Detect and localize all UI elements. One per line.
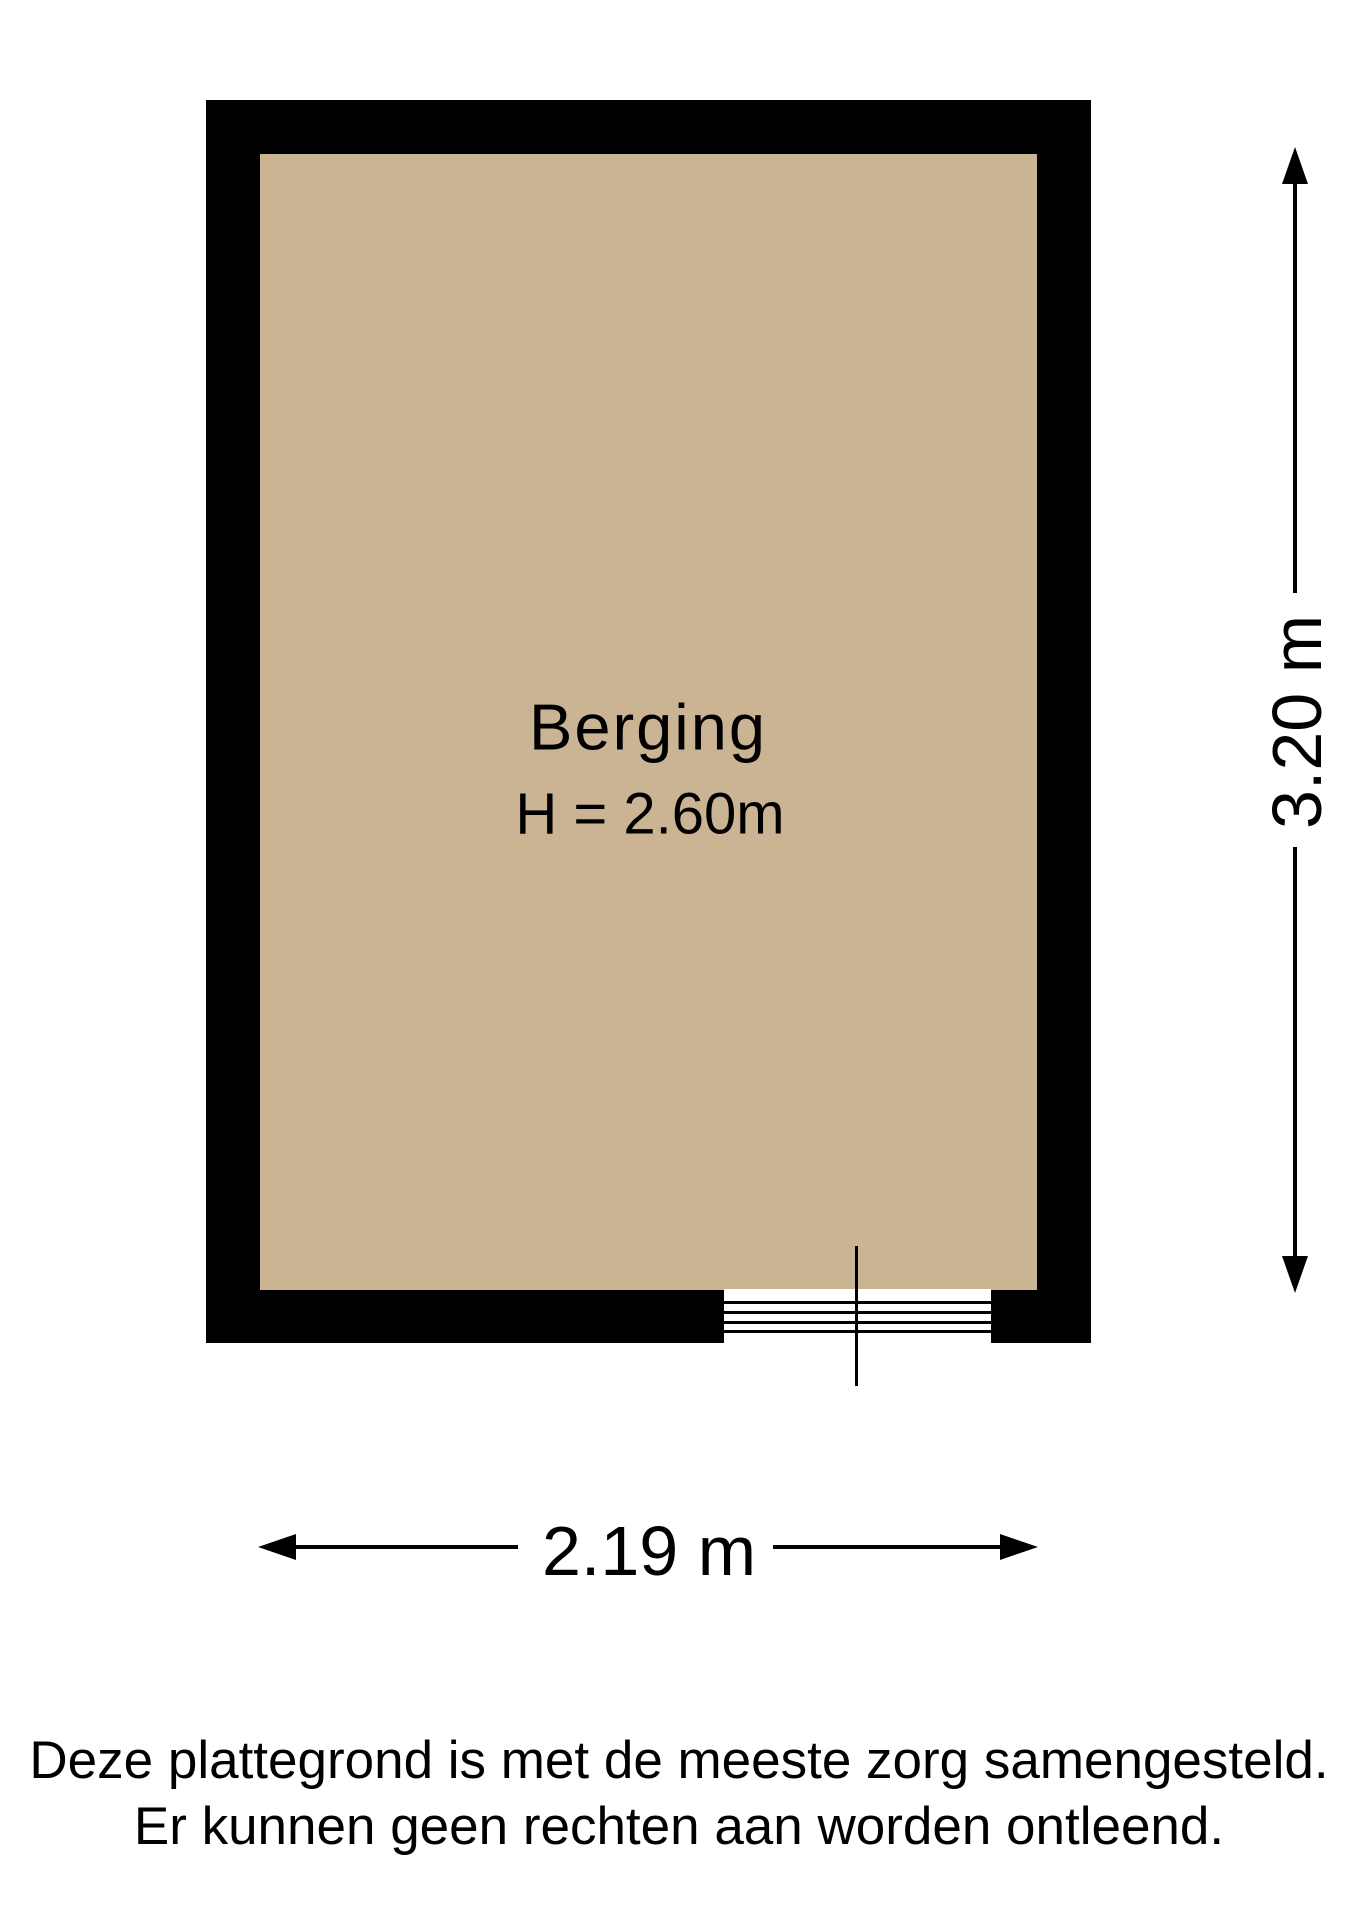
height-dimension-label: 3.20 m bbox=[1257, 615, 1337, 829]
width-dimension-label: 2.19 m bbox=[542, 1511, 756, 1591]
height-dimension-line bbox=[1293, 180, 1297, 593]
arrowhead-left-icon bbox=[258, 1534, 296, 1560]
room-name-label: Berging bbox=[529, 690, 767, 765]
height-dimension-line bbox=[1293, 847, 1297, 1259]
room-ceiling-height-label: H = 2.60m bbox=[515, 781, 784, 848]
disclaimer-line-2: Er kunnen geen rechten aan worden ontlee… bbox=[0, 1794, 1358, 1860]
disclaimer-line-1: Deze plattegrond is met de meeste zorg s… bbox=[0, 1728, 1358, 1794]
width-dimension-line bbox=[773, 1545, 1000, 1549]
arrowhead-right-icon bbox=[1000, 1534, 1038, 1560]
arrowhead-up-icon bbox=[1282, 147, 1308, 184]
disclaimer-text: Deze plattegrond is met de meeste zorg s… bbox=[0, 1728, 1358, 1860]
door-swing-line bbox=[855, 1246, 858, 1386]
floorplan-page: Berging H = 2.60m 3.20 m 2.19 m Deze pla… bbox=[0, 0, 1358, 1920]
arrowhead-down-icon bbox=[1282, 1256, 1308, 1293]
width-dimension-line bbox=[296, 1545, 518, 1549]
